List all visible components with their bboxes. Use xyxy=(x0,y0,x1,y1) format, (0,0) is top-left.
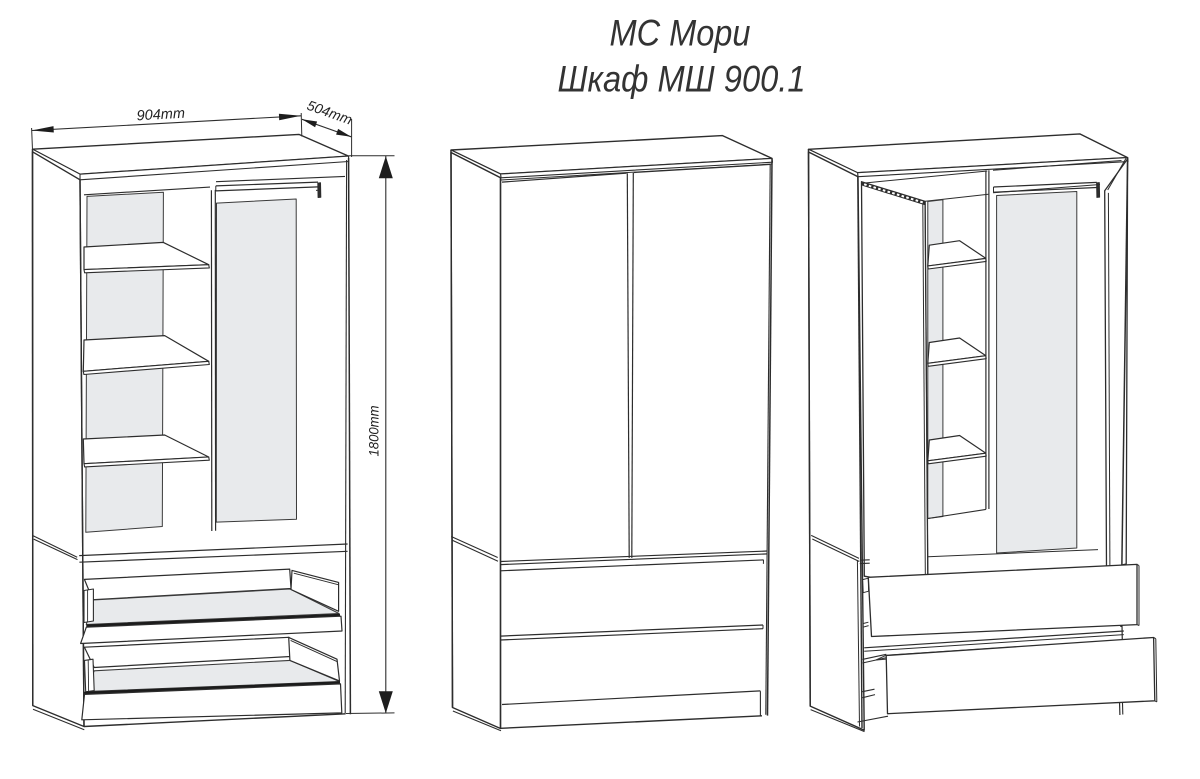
svg-text:МС Мори: МС Мори xyxy=(610,13,751,54)
svg-text:1800mm: 1800mm xyxy=(366,405,382,456)
svg-text:Шкаф МШ 900.1: Шкаф МШ 900.1 xyxy=(558,59,806,100)
svg-text:904mm: 904mm xyxy=(136,106,185,125)
